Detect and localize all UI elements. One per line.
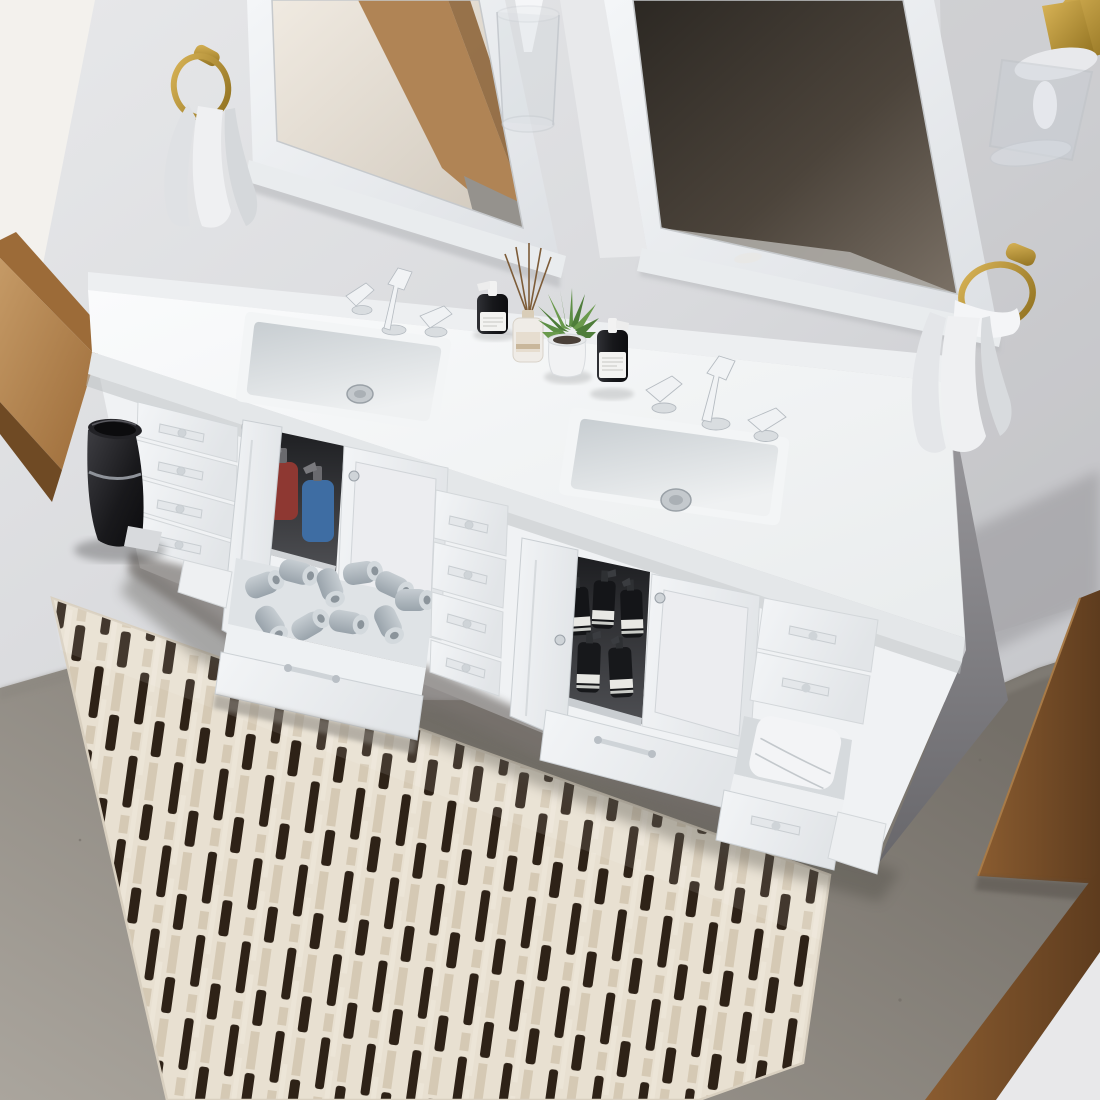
faucet-left-handle-base-2 (425, 327, 447, 337)
drawer-knob (802, 684, 811, 693)
cabinet-middle-open-door (510, 538, 578, 740)
sconce-center (497, 0, 560, 132)
handle-mount (332, 675, 340, 683)
sconce-center-glass-body (497, 12, 560, 126)
bathroom-render (0, 0, 1100, 1100)
bathroom-scene (0, 0, 1100, 1100)
sink-right-drain-center (669, 495, 683, 505)
faucet-right-handle-base-2 (754, 431, 778, 442)
faucet-left-handle-base-1 (352, 306, 372, 315)
faucet-right-handle-base-1 (652, 403, 676, 413)
cabinet-middle-door-panel (655, 590, 748, 736)
door-knob (655, 593, 665, 603)
handle-mount (594, 736, 602, 744)
sink-left-drain-center (354, 390, 366, 398)
handle-mount (284, 664, 292, 672)
drawer-knob (809, 632, 818, 641)
handle-mount (648, 750, 656, 758)
sconce-center-glass-bottom (502, 116, 554, 132)
door-knob (555, 635, 565, 645)
door-knob (349, 471, 359, 481)
sconce-center-glass-rim (497, 6, 559, 22)
drawer-knob (772, 822, 781, 831)
